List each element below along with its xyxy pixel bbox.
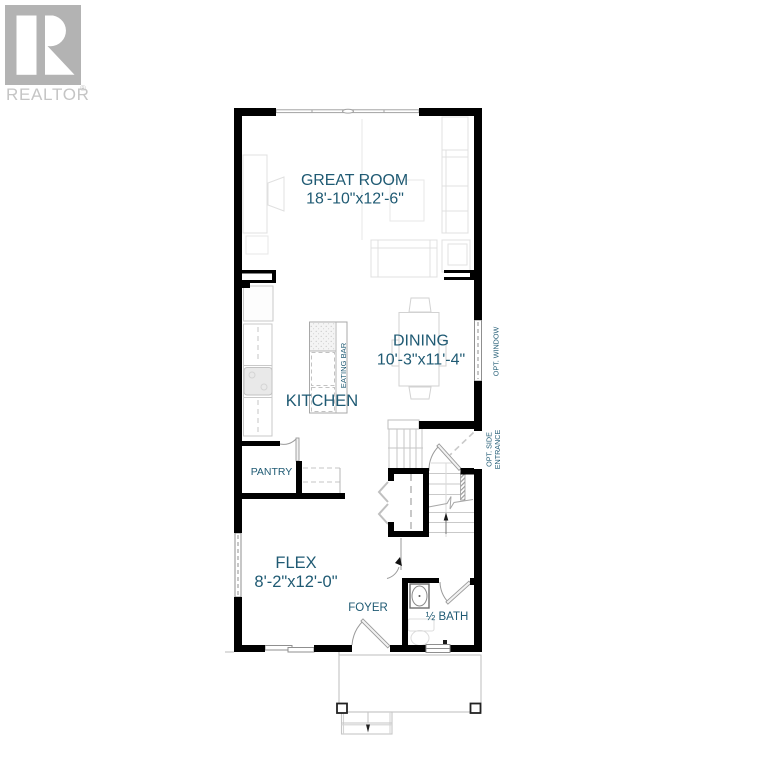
svg-text:KITCHEN: KITCHEN	[286, 392, 358, 410]
svg-text:18'-10"x12'-6": 18'-10"x12'-6"	[306, 191, 404, 208]
svg-text:8'-2"x12'-0": 8'-2"x12'-0"	[254, 573, 337, 591]
svg-text:EATING BAR: EATING BAR	[339, 342, 348, 388]
svg-text:10'-3"x11'-4": 10'-3"x11'-4"	[377, 351, 465, 368]
svg-text:OPT. WINDOW: OPT. WINDOW	[492, 327, 501, 377]
svg-text:GREAT ROOM: GREAT ROOM	[301, 172, 408, 189]
svg-text:REALTOR: REALTOR	[6, 85, 90, 104]
svg-text:FLEX: FLEX	[275, 554, 316, 572]
svg-text:½ BATH: ½ BATH	[426, 611, 469, 623]
svg-text:PANTRY: PANTRY	[251, 466, 293, 478]
svg-text:®: ®	[80, 84, 86, 93]
svg-text:ENTRANCE: ENTRANCE	[493, 430, 502, 470]
svg-text:DINING: DINING	[393, 332, 449, 349]
svg-text:FOYER: FOYER	[348, 602, 388, 614]
